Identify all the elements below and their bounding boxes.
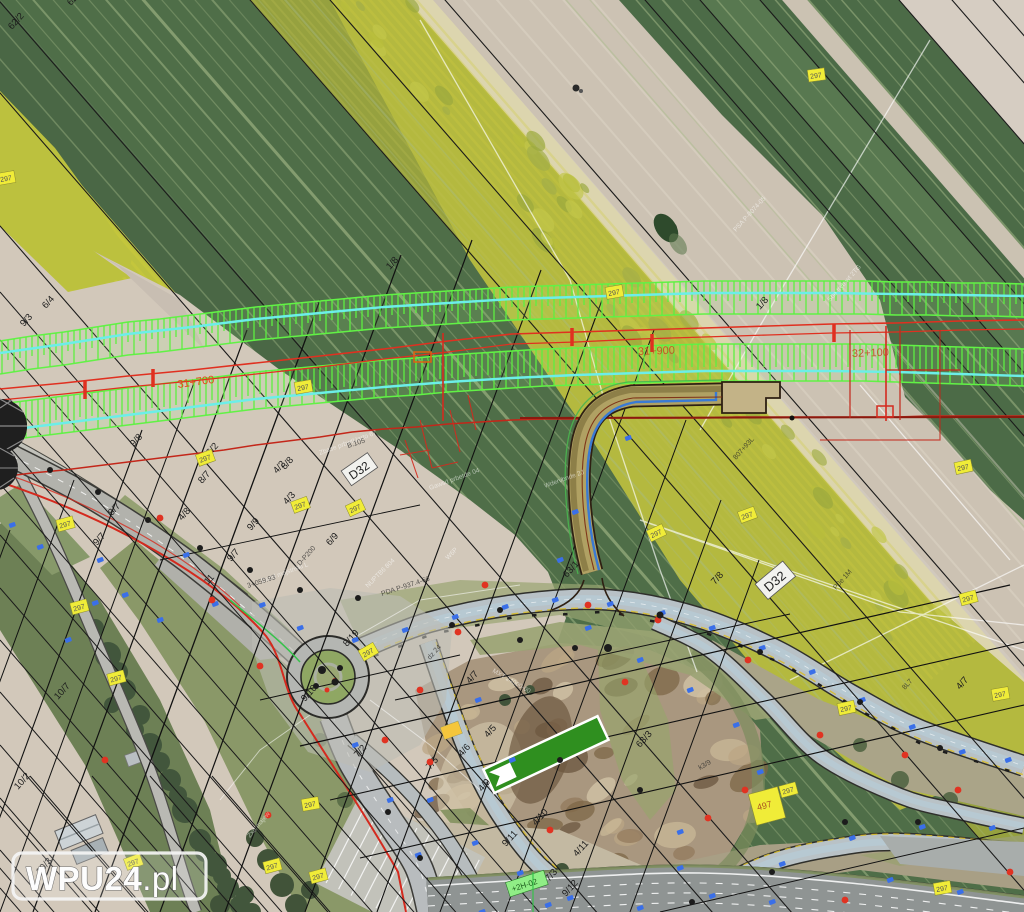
- svg-text:WPU24.pl: WPU24.pl: [26, 860, 179, 897]
- svg-text:31+900: 31+900: [638, 345, 675, 358]
- svg-text:32+100: 32+100: [852, 347, 889, 360]
